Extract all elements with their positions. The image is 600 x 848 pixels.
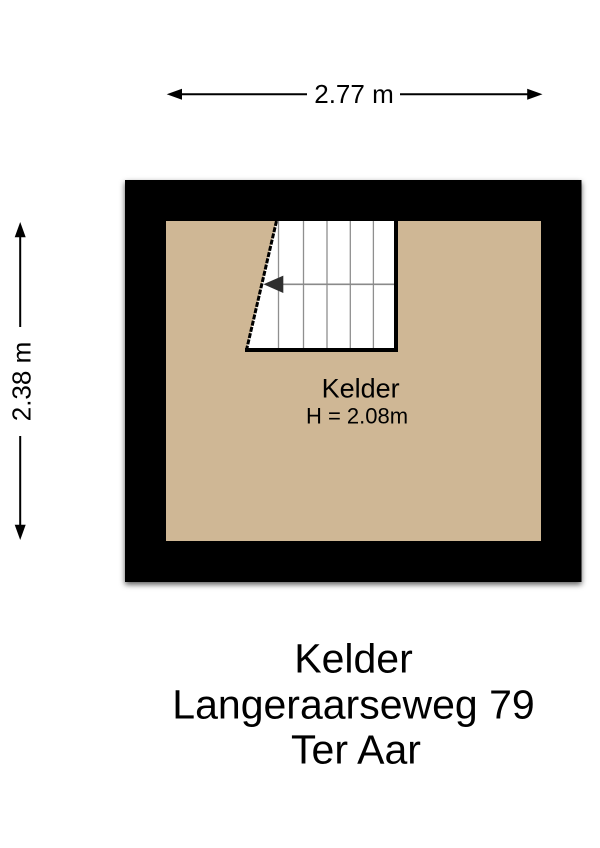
svg-text:2.77 m: 2.77 m [314, 79, 394, 109]
svg-text:2.38 m: 2.38 m [7, 342, 37, 422]
svg-text:Kelder: Kelder [322, 374, 400, 404]
svg-text:Langeraarseweg 79: Langeraarseweg 79 [172, 682, 534, 728]
svg-text:Kelder: Kelder [294, 636, 413, 682]
svg-text:H = 2.08m: H = 2.08m [306, 403, 408, 428]
svg-text:Ter Aar: Ter Aar [291, 727, 421, 773]
